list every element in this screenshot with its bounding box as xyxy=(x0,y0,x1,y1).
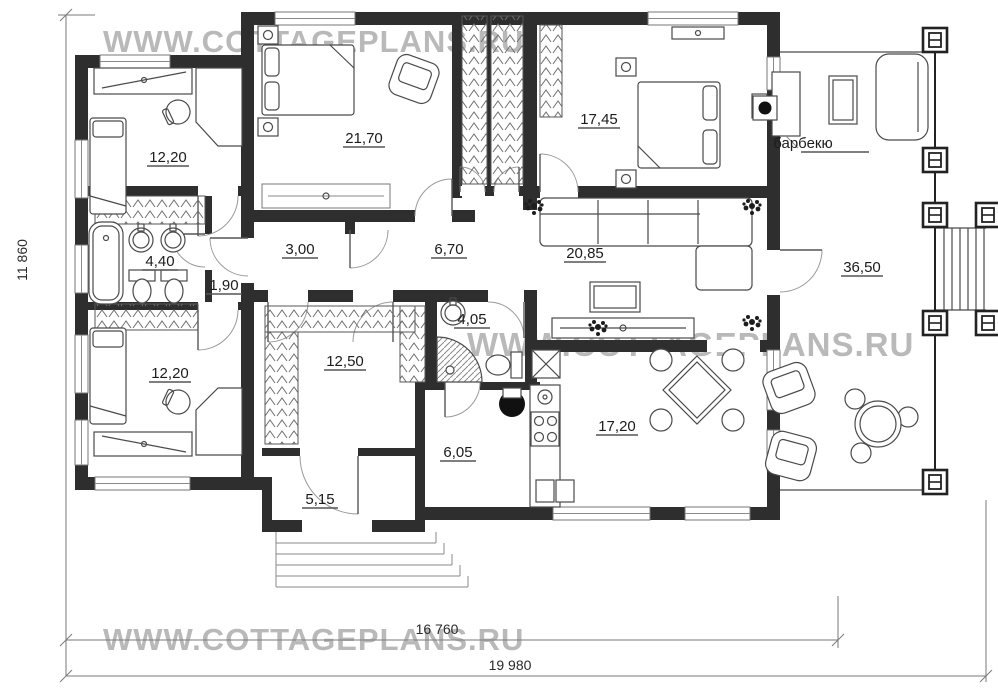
office-chair xyxy=(160,385,194,418)
room-label-vestibule: 1,90 xyxy=(209,277,238,294)
column xyxy=(923,148,947,172)
room-label-bathroom-main: 4,40 xyxy=(145,253,174,270)
cabinet xyxy=(536,480,554,502)
closet-rack xyxy=(491,16,523,184)
toilet xyxy=(129,270,155,303)
dining-table xyxy=(650,349,744,431)
sink xyxy=(161,224,185,252)
bed xyxy=(90,328,126,424)
terrace-sofa xyxy=(876,54,928,140)
floor-plan-drawing: WWW.COTTAGEPLANS.RU WWW.COTTAGEPLANS.RU … xyxy=(0,0,998,693)
armchair xyxy=(386,52,442,107)
room-label-bedroom-bottom-left: 12,20 xyxy=(151,365,189,382)
tv-cabinet xyxy=(552,318,694,338)
room-label-shower-room: 4,05 xyxy=(457,311,486,328)
corner-desk xyxy=(196,388,242,455)
stove xyxy=(531,412,559,446)
entry-steps xyxy=(276,532,468,587)
room-label-corridor: 3,00 xyxy=(285,241,314,258)
bed xyxy=(90,118,126,214)
fridge xyxy=(532,350,560,378)
closet-rack xyxy=(540,25,562,117)
nightstand xyxy=(258,118,278,136)
room-label-hall: 6,05 xyxy=(443,444,472,461)
closet-rack xyxy=(95,304,198,330)
nightstand xyxy=(258,26,278,44)
room-label-kitchen-dining: 17,20 xyxy=(598,418,636,435)
sink xyxy=(129,224,153,252)
dim-height: 11 860 xyxy=(14,239,30,281)
wardrobe-rack xyxy=(400,306,425,382)
room-label-bedroom-master: 21,70 xyxy=(345,130,383,147)
cabinet xyxy=(556,480,574,502)
column xyxy=(923,203,947,227)
dim-width-inner: 16 760 xyxy=(416,621,459,637)
room-label-living-room: 20,85 xyxy=(566,245,604,262)
column xyxy=(976,203,998,227)
sofa-chaise xyxy=(696,246,752,290)
column xyxy=(923,470,947,494)
round-table-set xyxy=(845,389,918,463)
room-label-terrace: 36,50 xyxy=(843,259,881,276)
bathtub xyxy=(89,222,123,304)
closet-rack xyxy=(462,16,487,184)
dresser xyxy=(672,27,724,39)
nightstand xyxy=(616,58,636,76)
column xyxy=(976,311,998,335)
corner-desk xyxy=(196,68,242,146)
column xyxy=(923,311,947,335)
side-table xyxy=(829,76,857,124)
wardrobe-rack xyxy=(265,306,415,332)
dresser xyxy=(94,68,192,94)
dim-width-total: 19 980 xyxy=(489,657,532,673)
double-bed xyxy=(638,82,720,168)
water-heater xyxy=(499,388,525,417)
column xyxy=(923,28,947,52)
office-chair xyxy=(160,96,194,129)
room-label-entry: 5,15 xyxy=(305,491,334,508)
room-label-wardrobe: 12,50 xyxy=(326,353,364,370)
double-bed xyxy=(262,45,354,115)
shower-drain xyxy=(446,366,454,374)
room-label-hallway: 6,70 xyxy=(434,241,463,258)
coffee-table xyxy=(590,282,640,312)
floor-plan-page: WWW.COTTAGEPLANS.RU WWW.COTTAGEPLANS.RU … xyxy=(0,0,998,693)
wardrobe-rack xyxy=(265,332,298,444)
room-label-bedroom-right: 17,45 xyxy=(580,111,618,128)
toilet xyxy=(161,270,187,303)
sofa xyxy=(540,198,752,290)
room-label-bedroom-top-left: 12,20 xyxy=(149,149,187,166)
label-barbecue: барбекю xyxy=(773,135,833,152)
nightstand xyxy=(616,170,636,188)
